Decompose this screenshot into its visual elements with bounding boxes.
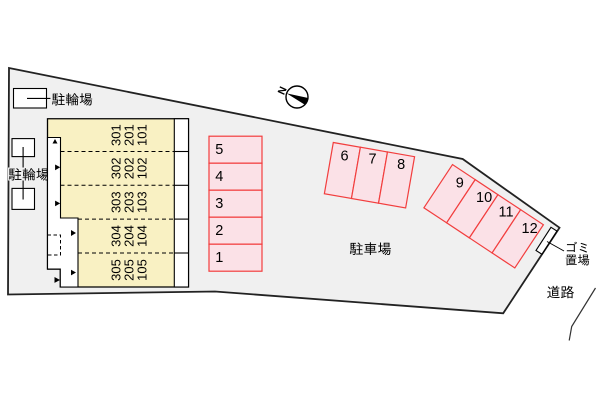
svg-text:301201101: 301201101 [109,124,150,146]
svg-text:3: 3 [215,196,223,212]
svg-text:305205105: 305205105 [109,259,150,281]
svg-text:10: 10 [476,190,492,206]
svg-text:6: 6 [341,149,349,165]
svg-text:8: 8 [397,157,405,173]
svg-text:4: 4 [215,169,223,185]
svg-text:12: 12 [522,221,538,237]
svg-text:11: 11 [498,205,513,221]
svg-text:7: 7 [369,152,377,168]
svg-text:2: 2 [215,223,223,239]
svg-text:5: 5 [215,142,223,158]
svg-text:9: 9 [456,176,464,192]
svg-text:302202102: 302202102 [109,158,150,180]
svg-text:303203103: 303203103 [109,191,150,213]
svg-text:304204104: 304204104 [109,225,150,247]
svg-text:1: 1 [215,250,223,266]
